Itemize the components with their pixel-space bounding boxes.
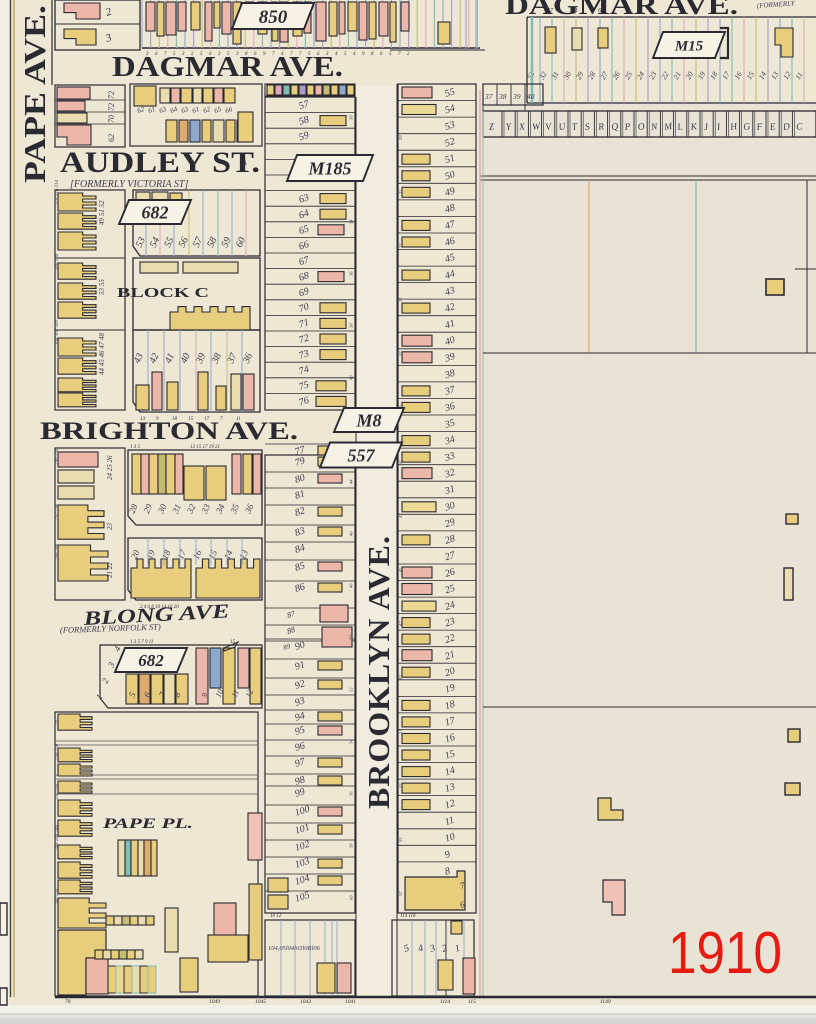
svg-text:BLOCK C: BLOCK C <box>117 285 209 300</box>
svg-text:M185: M185 <box>307 159 351 179</box>
svg-text:2 4 6 8 10 14 16 20: 2 4 6 8 10 14 16 20 <box>140 605 179 610</box>
svg-text:BROOKLYN AVE.: BROOKLYN AVE. <box>361 535 396 809</box>
svg-text:29: 29 <box>398 135 403 140</box>
svg-text:1 3 5 7 9 11: 1 3 5 7 9 11 <box>130 640 153 645</box>
svg-text:682: 682 <box>142 203 169 223</box>
svg-text:37: 37 <box>398 351 403 356</box>
svg-text:40: 40 <box>527 92 535 101</box>
svg-text:33: 33 <box>398 243 403 248</box>
svg-text:38: 38 <box>498 92 507 101</box>
svg-text:35: 35 <box>398 297 403 302</box>
svg-text:252 250: 252 250 <box>55 783 60 800</box>
svg-text:13 15 17 19 21: 13 15 17 19 21 <box>190 445 220 450</box>
svg-text:682: 682 <box>138 651 164 670</box>
svg-text:46: 46 <box>349 531 354 536</box>
svg-text:31: 31 <box>398 190 403 195</box>
svg-text:44: 44 <box>349 479 354 484</box>
svg-text:296 294: 296 294 <box>55 448 60 465</box>
svg-text:45: 45 <box>398 567 403 572</box>
svg-text:72: 72 <box>107 103 116 111</box>
svg-text:54: 54 <box>349 739 354 744</box>
svg-text:115: 115 <box>468 999 476 1005</box>
svg-text:308 306: 308 306 <box>55 253 60 270</box>
svg-text:37: 37 <box>484 92 493 101</box>
svg-text:1910: 1910 <box>668 920 782 986</box>
svg-text:1 3 5: 1 3 5 <box>130 445 141 450</box>
svg-text:62: 62 <box>107 134 116 142</box>
svg-text:248 246 244: 248 246 244 <box>55 825 60 851</box>
svg-text:PAPE PL.: PAPE PL. <box>103 816 193 832</box>
svg-text:M8: M8 <box>355 411 381 431</box>
svg-text:55: 55 <box>398 837 403 842</box>
svg-text:53: 53 <box>398 783 403 788</box>
svg-text:1114: 1114 <box>440 998 450 1005</box>
svg-text:288 286: 288 286 <box>55 543 60 560</box>
svg-text:318 316 314: 318 316 314 <box>55 180 60 206</box>
svg-text:AUDLEY ST.: AUDLEY ST. <box>60 146 260 179</box>
svg-text:DAGMAR AVE.: DAGMAR AVE. <box>505 0 738 20</box>
svg-text:1045: 1045 <box>255 998 266 1005</box>
svg-text:1041: 1041 <box>345 998 356 1005</box>
svg-text:[FORMERLY VICTORIA ST]: [FORMERLY VICTORIA ST] <box>70 179 188 190</box>
svg-text:39: 39 <box>512 92 521 101</box>
svg-text:850: 850 <box>259 7 288 28</box>
svg-text:PAPE AVE.: PAPE AVE. <box>17 5 52 183</box>
svg-text:304 302 300: 304 302 300 <box>55 320 60 346</box>
svg-text:10 12: 10 12 <box>270 914 282 919</box>
svg-text:M15: M15 <box>674 38 704 54</box>
svg-text:BRIGHTON AVE.: BRIGHTON AVE. <box>40 418 298 445</box>
svg-text:70: 70 <box>107 115 116 123</box>
svg-text:57: 57 <box>398 891 403 896</box>
svg-text:36: 36 <box>349 271 354 276</box>
svg-text:56: 56 <box>349 791 354 796</box>
svg-text:60: 60 <box>349 895 354 900</box>
svg-text:41: 41 <box>398 460 403 465</box>
svg-text:72: 72 <box>107 91 116 99</box>
svg-text:292 290: 292 290 <box>55 503 60 520</box>
svg-text:38: 38 <box>349 323 354 328</box>
svg-text:44 45 46 47 48: 44 45 46 47 48 <box>98 333 106 376</box>
svg-text:49 51 52: 49 51 52 <box>98 200 106 225</box>
svg-text:53 55: 53 55 <box>98 279 106 295</box>
svg-text:557: 557 <box>348 446 376 466</box>
svg-text:48: 48 <box>349 583 354 588</box>
svg-text:43: 43 <box>398 513 403 518</box>
svg-text:49: 49 <box>398 675 403 680</box>
svg-text:78: 78 <box>65 999 71 1005</box>
svg-text:50: 50 <box>349 635 354 640</box>
svg-text:21 22: 21 22 <box>106 562 114 578</box>
svg-text:47: 47 <box>398 621 403 626</box>
svg-text:52: 52 <box>349 687 354 692</box>
svg-text:40: 40 <box>349 375 354 380</box>
svg-text:34: 34 <box>349 219 354 224</box>
svg-text:51: 51 <box>398 730 403 735</box>
svg-text:114 116: 114 116 <box>400 914 416 919</box>
svg-text:1149: 1149 <box>600 998 611 1005</box>
svg-text:D: D <box>781 122 790 133</box>
svg-text:23: 23 <box>106 523 114 531</box>
svg-text:240 238: 240 238 <box>55 888 60 905</box>
svg-text:104,05l04l03l0Rl06: 104,05l04l03l0Rl06 <box>268 945 321 952</box>
svg-text:1049: 1049 <box>209 998 220 1005</box>
svg-text:30: 30 <box>349 115 354 120</box>
svg-text:1043: 1043 <box>300 998 311 1005</box>
svg-text:24 25 26: 24 25 26 <box>106 455 114 480</box>
svg-text:DAGMAR AVE.: DAGMAR AVE. <box>112 52 343 83</box>
svg-text:262: 262 <box>55 717 60 725</box>
svg-text:258 256: 258 256 <box>55 743 60 760</box>
svg-text:58: 58 <box>349 843 354 848</box>
